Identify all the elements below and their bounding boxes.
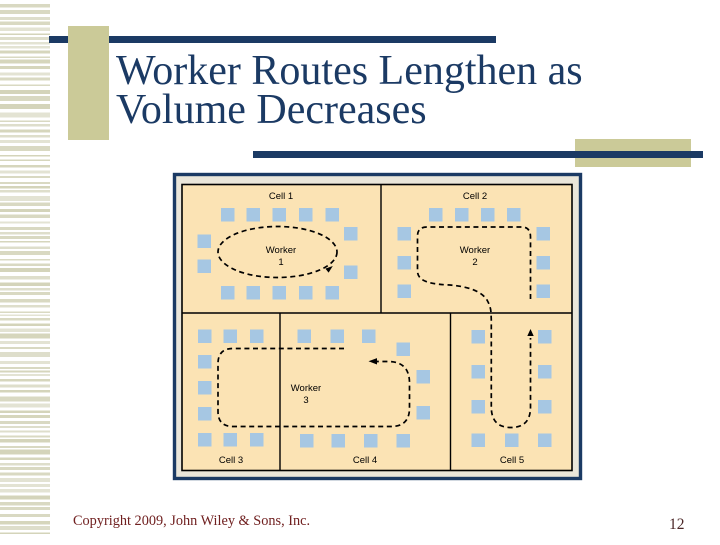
svg-text:Worker: Worker — [460, 245, 490, 256]
svg-text:2: 2 — [472, 257, 477, 268]
svg-text:3: 3 — [303, 395, 308, 406]
svg-text:Worker: Worker — [291, 383, 321, 394]
svg-text:Cell 3: Cell 3 — [219, 455, 243, 466]
svg-text:Worker: Worker — [266, 245, 296, 256]
svg-text:Cell 4: Cell 4 — [353, 455, 377, 466]
svg-text:Cell 2: Cell 2 — [463, 191, 487, 202]
svg-text:Cell 1: Cell 1 — [269, 191, 293, 202]
svg-text:1: 1 — [278, 257, 283, 268]
svg-text:Cell 5: Cell 5 — [500, 455, 524, 466]
